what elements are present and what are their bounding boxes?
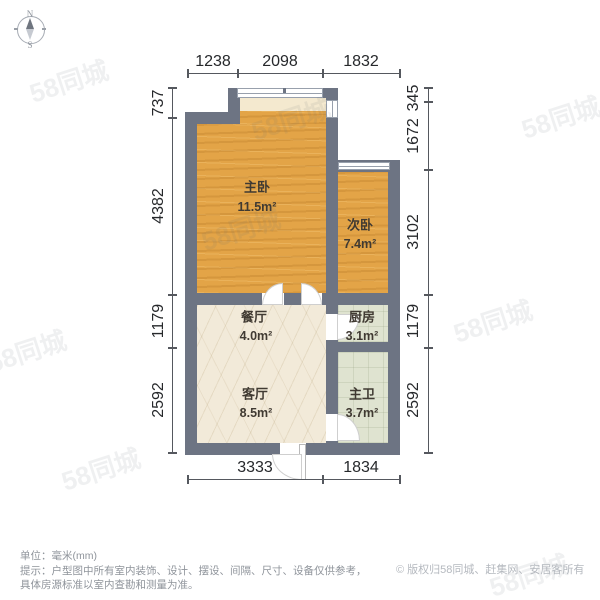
watermark: 58同城 (0, 320, 71, 380)
dim-tick (424, 294, 433, 296)
room-area-master-bathroom: 3.7m² (346, 406, 379, 420)
dim-line-top (188, 73, 400, 74)
wall-lower-divider-c (326, 441, 338, 443)
room-label-master-bathroom: 主卫 (349, 384, 375, 403)
dim-tick (322, 475, 324, 484)
room-label-dining-room: 餐厅 (241, 307, 267, 326)
dim-top-2: 2098 (262, 53, 298, 71)
footer-copyright: © 版权归58同城、赶集网、安居客所有 (396, 561, 584, 577)
window-master-bedroom-side (326, 100, 338, 118)
watermark: 58同城 (448, 290, 536, 350)
dim-tick (424, 169, 433, 171)
compass-needle-south (26, 29, 34, 40)
dim-tick (187, 475, 189, 484)
room-label-kitchen: 厨房 (349, 307, 375, 326)
dim-right-3: 3102 (405, 214, 423, 250)
bay-window-sill (240, 98, 326, 111)
dim-tick (168, 117, 177, 119)
wall-bedrooms-bottom-b (284, 293, 301, 305)
room-area-kitchen: 3.1m² (346, 329, 379, 343)
wall-bedrooms-bottom-a (197, 293, 262, 305)
dim-tick (322, 69, 324, 78)
dim-tick (187, 69, 189, 78)
dim-tick (424, 452, 433, 454)
compass-needle-north (26, 18, 34, 29)
dim-line-bottom (188, 479, 400, 480)
entry-door-arc (272, 454, 302, 480)
room-label-living-room: 客厅 (242, 384, 268, 403)
wall-lower-divider-b (326, 340, 338, 414)
dim-tick (168, 294, 177, 296)
window-second-bedroom (338, 162, 390, 170)
wall-left (185, 112, 197, 455)
watermark: 58同城 (56, 438, 144, 498)
dim-tick (399, 475, 401, 484)
dim-tick (168, 452, 177, 454)
dim-top-1: 1238 (195, 53, 231, 71)
room-label-master-bedroom: 主卧 (244, 177, 270, 196)
dim-right-1: 345 (405, 85, 423, 112)
compass: N S (8, 4, 54, 54)
wall-bedrooms-bottom-c (322, 293, 388, 305)
dim-tick (168, 347, 177, 349)
compass-south-label: S (27, 40, 32, 50)
watermark: 58同城 (24, 50, 112, 110)
dim-line-left (172, 88, 173, 453)
footer-note-line2: 具体房源标准以室内查勘和测量为准。 (20, 577, 199, 592)
dim-tick (424, 87, 433, 89)
compass-east-tick (42, 28, 46, 30)
wall-bottom-left (185, 443, 280, 455)
dim-left-4: 2592 (150, 382, 168, 418)
dim-tick (237, 69, 239, 78)
wall-bedroom-divider (326, 172, 338, 293)
dim-left-2: 4382 (150, 188, 168, 224)
window-master-bedroom (237, 88, 323, 98)
compass-west-tick (14, 28, 18, 30)
wall-lower-divider-a (326, 305, 338, 314)
room-area-master-bedroom: 11.5m² (238, 200, 277, 214)
dim-right-2: 1672 (405, 118, 423, 154)
watermark: 58同城 (516, 86, 600, 146)
room-area-dining-room: 4.0m² (240, 329, 273, 343)
dim-left-1: 737 (150, 90, 168, 117)
footer-note-line1: 提示：户型图中所有室内装饰、设计、摆设、间隔、尺寸、设备仅供参考， (20, 563, 367, 578)
wall-kitchen-bath-divider (338, 342, 388, 352)
dim-bottom-1: 3333 (237, 459, 273, 477)
dim-right-4: 1179 (405, 304, 423, 338)
dim-tick (168, 87, 177, 89)
dim-tick (424, 101, 433, 103)
dim-line-right (428, 88, 429, 453)
room-area-living-room: 8.5m² (240, 406, 273, 420)
dim-right-5: 2592 (405, 382, 423, 418)
dim-top-3: 1832 (343, 53, 379, 71)
room-label-second-bedroom: 次卧 (347, 215, 373, 234)
wall-right (388, 160, 400, 455)
dim-left-3: 1179 (150, 304, 168, 338)
dim-bottom-2: 1834 (343, 459, 379, 477)
window-mullion (283, 88, 286, 93)
wall-bottom-right (306, 443, 400, 455)
footer-unit-line: 单位：毫米(mm) (20, 548, 97, 563)
dim-tick (424, 347, 433, 349)
room-dining-living-floor (197, 305, 326, 443)
floor-plan-page: N S 主卧 11.5m² 次卧 7.4m² 餐厅 4.0m² 厨房 (0, 0, 600, 600)
dim-tick (399, 69, 401, 78)
room-area-second-bedroom: 7.4m² (344, 237, 377, 251)
